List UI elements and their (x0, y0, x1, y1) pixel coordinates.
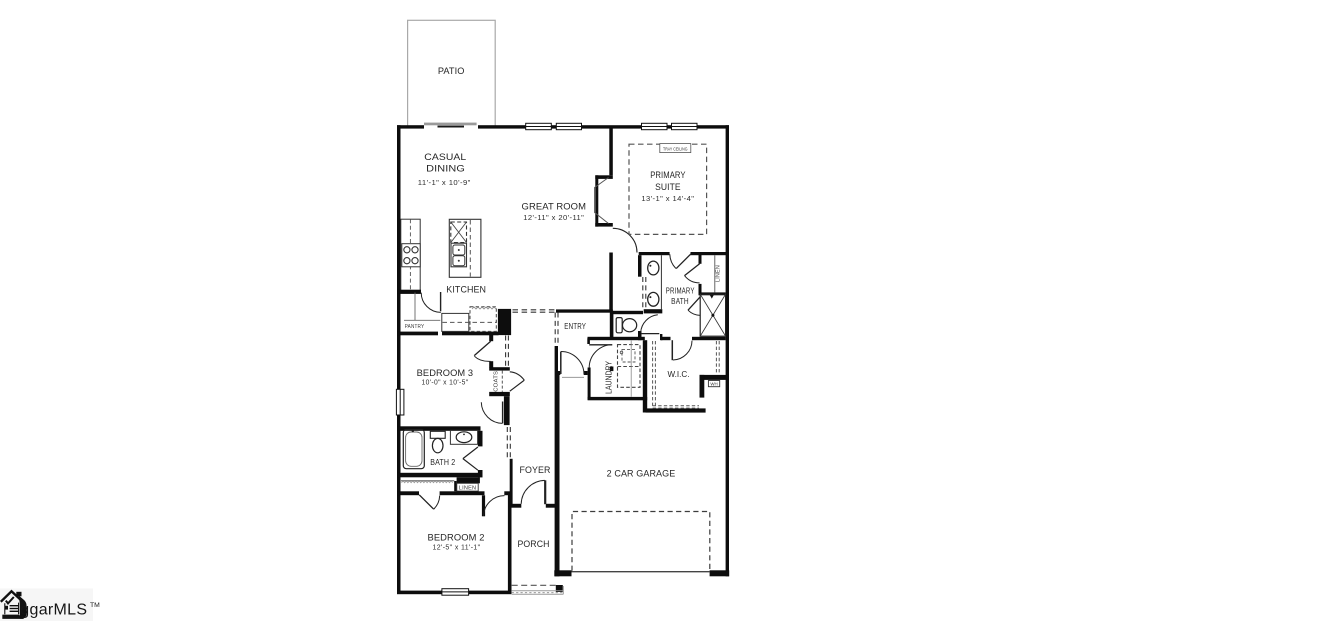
svg-text:PATIO: PATIO (438, 65, 465, 76)
svg-text:BATH: BATH (671, 297, 689, 306)
svg-text:ENTRY: ENTRY (564, 322, 586, 331)
svg-text:DINING: DINING (426, 162, 465, 173)
svg-text:LINEN: LINEN (459, 485, 477, 491)
svg-text:COATS: COATS (494, 370, 500, 391)
svg-text:TM: TM (90, 602, 100, 609)
svg-text:10'-0" x 10'-5": 10'-0" x 10'-5" (422, 378, 469, 387)
svg-text:12'-11" x 20'-11": 12'-11" x 20'-11" (523, 213, 584, 222)
svg-text:11'-1" x 10'-9": 11'-1" x 10'-9" (418, 178, 471, 187)
svg-text:TRAY CEILING: TRAY CEILING (663, 146, 688, 152)
svg-text:CASUAL: CASUAL (424, 151, 466, 162)
svg-text:PRIMARY: PRIMARY (666, 287, 695, 296)
svg-text:ggarMLS: ggarMLS (20, 602, 87, 619)
svg-text:BEDROOM 2: BEDROOM 2 (428, 531, 485, 542)
svg-text:KITCHEN: KITCHEN (446, 284, 486, 295)
svg-text:LINEN: LINEN (716, 265, 722, 282)
svg-text:GREAT ROOM: GREAT ROOM (522, 200, 587, 211)
svg-text:BEDROOM 3: BEDROOM 3 (417, 367, 474, 378)
svg-text:12'-5" x 11'-1": 12'-5" x 11'-1" (433, 543, 481, 552)
svg-text:LAUNDRY: LAUNDRY (605, 360, 614, 394)
svg-text:2 CAR GARAGE: 2 CAR GARAGE (607, 467, 676, 478)
svg-text:W.I.C.: W.I.C. (668, 370, 690, 379)
svg-text:PRIMARY: PRIMARY (650, 169, 686, 180)
svg-text:SUITE: SUITE (655, 181, 681, 192)
svg-text:PANTRY: PANTRY (405, 324, 425, 330)
svg-text:FOYER: FOYER (520, 464, 551, 475)
svg-text:WH: WH (710, 381, 717, 386)
svg-text:PORCH: PORCH (518, 538, 550, 549)
svg-text:BATH 2: BATH 2 (430, 458, 455, 467)
svg-text:13'-1" x 14'-4": 13'-1" x 14'-4" (641, 194, 694, 203)
